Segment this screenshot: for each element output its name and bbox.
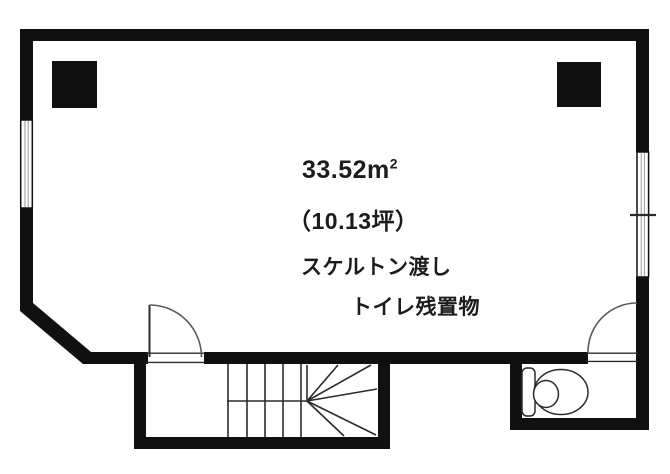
wall-top	[20, 29, 649, 41]
door-swing-icon-stairs	[146, 305, 205, 362]
pillar-icon-left	[52, 61, 97, 108]
toilet-icon	[522, 368, 588, 416]
floor-plan: 33.52m2 （10.13坪） スケルトン渡し トイレ残置物	[0, 0, 670, 474]
wall-left-lower-diagonal	[20, 208, 148, 364]
floor-plan-drawing	[0, 0, 670, 474]
condition-note-label: スケルトン渡し	[301, 251, 452, 281]
door-arc	[150, 305, 202, 357]
window-icon-right	[630, 152, 656, 277]
stair-winder-fan	[307, 365, 377, 436]
pillar-icon-right	[557, 62, 601, 107]
toilet-seat-detail	[534, 381, 559, 408]
wall-right-upper	[636, 29, 649, 152]
area-sqm-label: 33.52m2	[302, 156, 398, 185]
wall-bottom-main	[204, 352, 588, 364]
door-arc	[588, 303, 637, 352]
window-icon-left	[21, 120, 33, 208]
stair-wall-bottom	[134, 437, 390, 449]
stair-wall-right	[378, 364, 390, 449]
staircase-icon	[227, 364, 377, 437]
wall-left-upper	[20, 29, 33, 121]
stair-wall-left	[134, 352, 146, 449]
door-swing-icon-toilet	[586, 303, 638, 361]
area-tsubo-label: （10.13坪）	[288, 202, 419, 236]
toilet-note-label: トイレ残置物	[351, 291, 480, 321]
toilet-wall-bottom	[510, 418, 649, 430]
